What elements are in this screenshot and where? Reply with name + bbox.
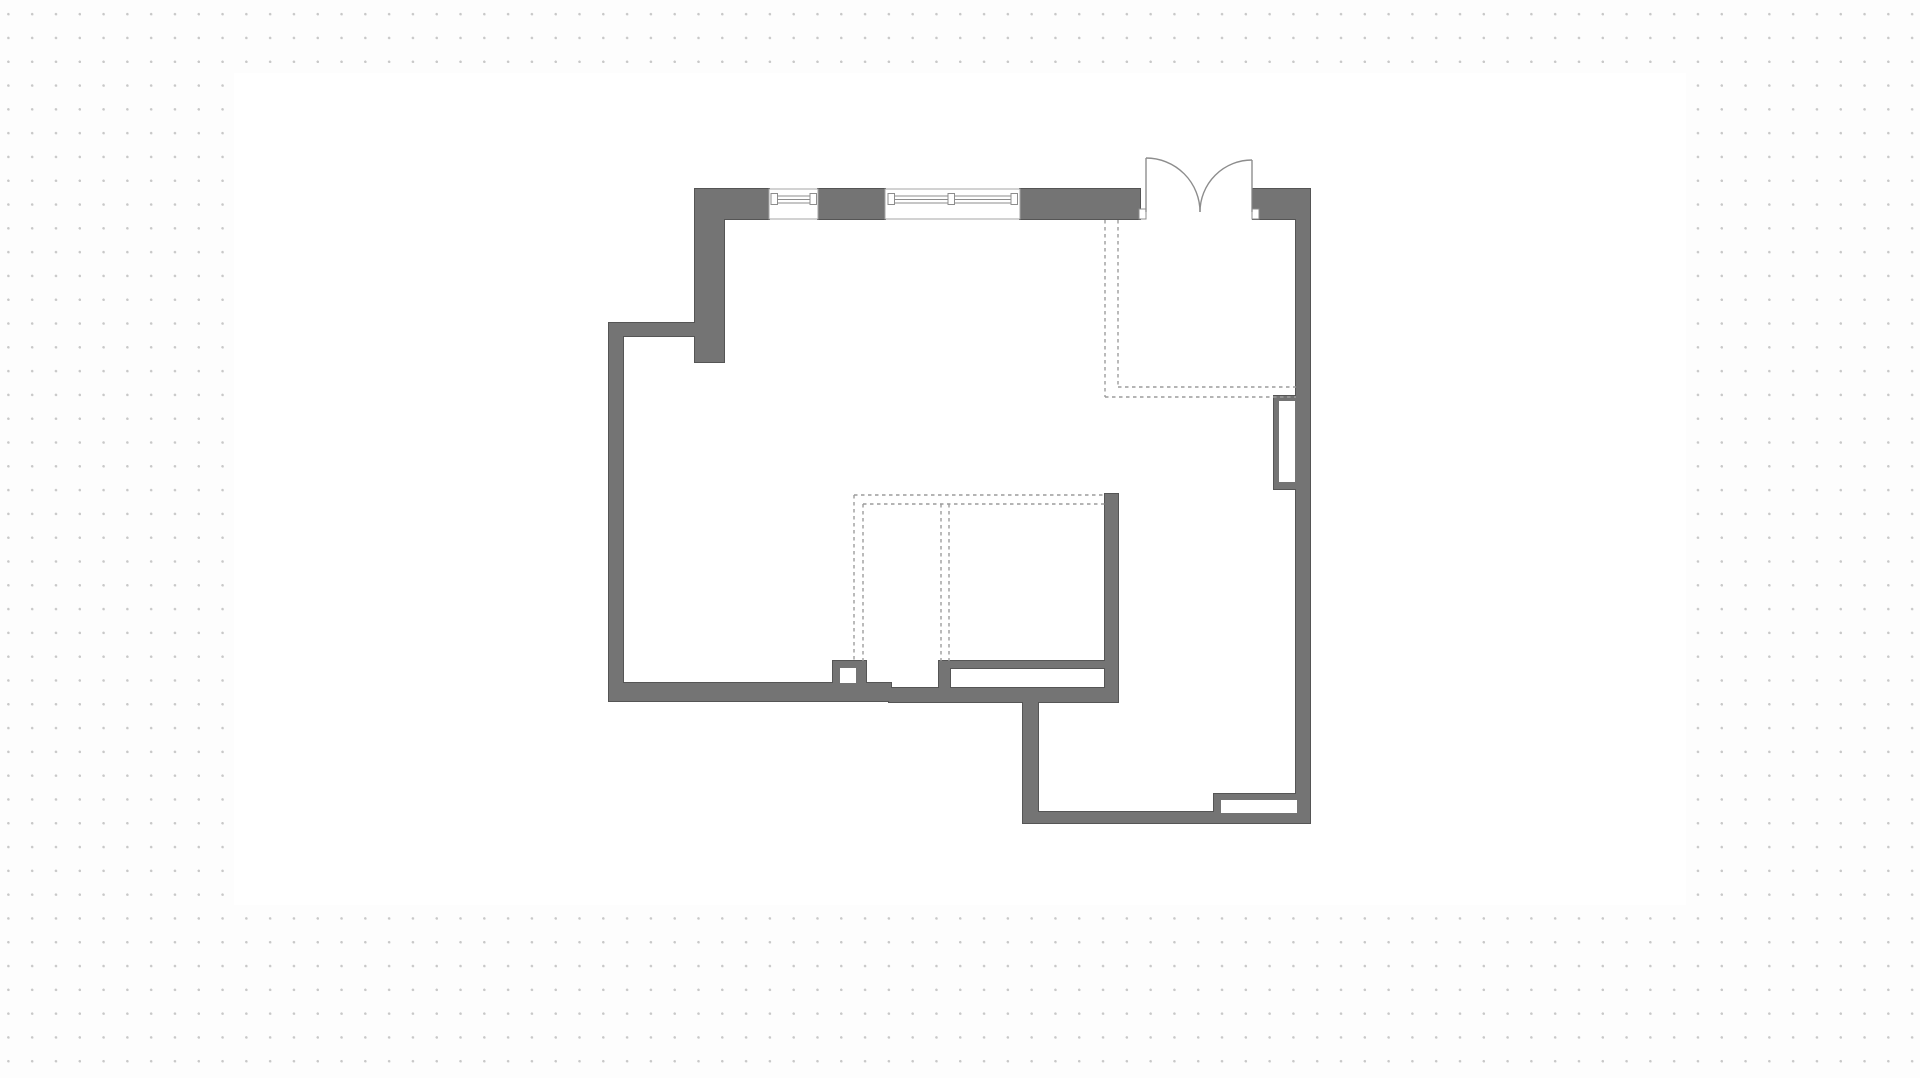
mid-partition-wall[interactable] bbox=[1105, 494, 1118, 702]
floorplan-stage bbox=[0, 0, 1920, 1078]
window-wide-mullion-1 bbox=[948, 194, 955, 205]
bottom-wall-east[interactable] bbox=[889, 688, 1118, 702]
pocket-wall-top[interactable] bbox=[941, 661, 1107, 668]
top-wall-entry-right[interactable] bbox=[1253, 189, 1310, 219]
window-wide-mullion-2 bbox=[1011, 194, 1018, 205]
lower-room-left-wall[interactable] bbox=[1023, 700, 1038, 822]
pillar-hollow bbox=[840, 668, 856, 683]
window-wide-mullion-0 bbox=[888, 194, 895, 205]
left-wall[interactable] bbox=[609, 323, 623, 701]
pocket-wall-cap[interactable] bbox=[939, 661, 950, 702]
bottom-sill-niche-hollow bbox=[1221, 800, 1297, 813]
window-small-mullion-1 bbox=[810, 194, 817, 205]
top-wall-right[interactable] bbox=[1020, 189, 1140, 219]
door-jamb-1 bbox=[1252, 209, 1259, 219]
floorplan-canvas-svg bbox=[0, 0, 1920, 1078]
right-wall[interactable] bbox=[1296, 217, 1310, 823]
window-small-mullion-0 bbox=[771, 194, 778, 205]
upper-left-wall[interactable] bbox=[695, 189, 724, 362]
door-jamb-0 bbox=[1139, 209, 1146, 219]
windows-layer bbox=[769, 189, 1020, 219]
right-wall-niche-hollow bbox=[1279, 401, 1295, 482]
top-wall-mid[interactable] bbox=[818, 189, 885, 219]
